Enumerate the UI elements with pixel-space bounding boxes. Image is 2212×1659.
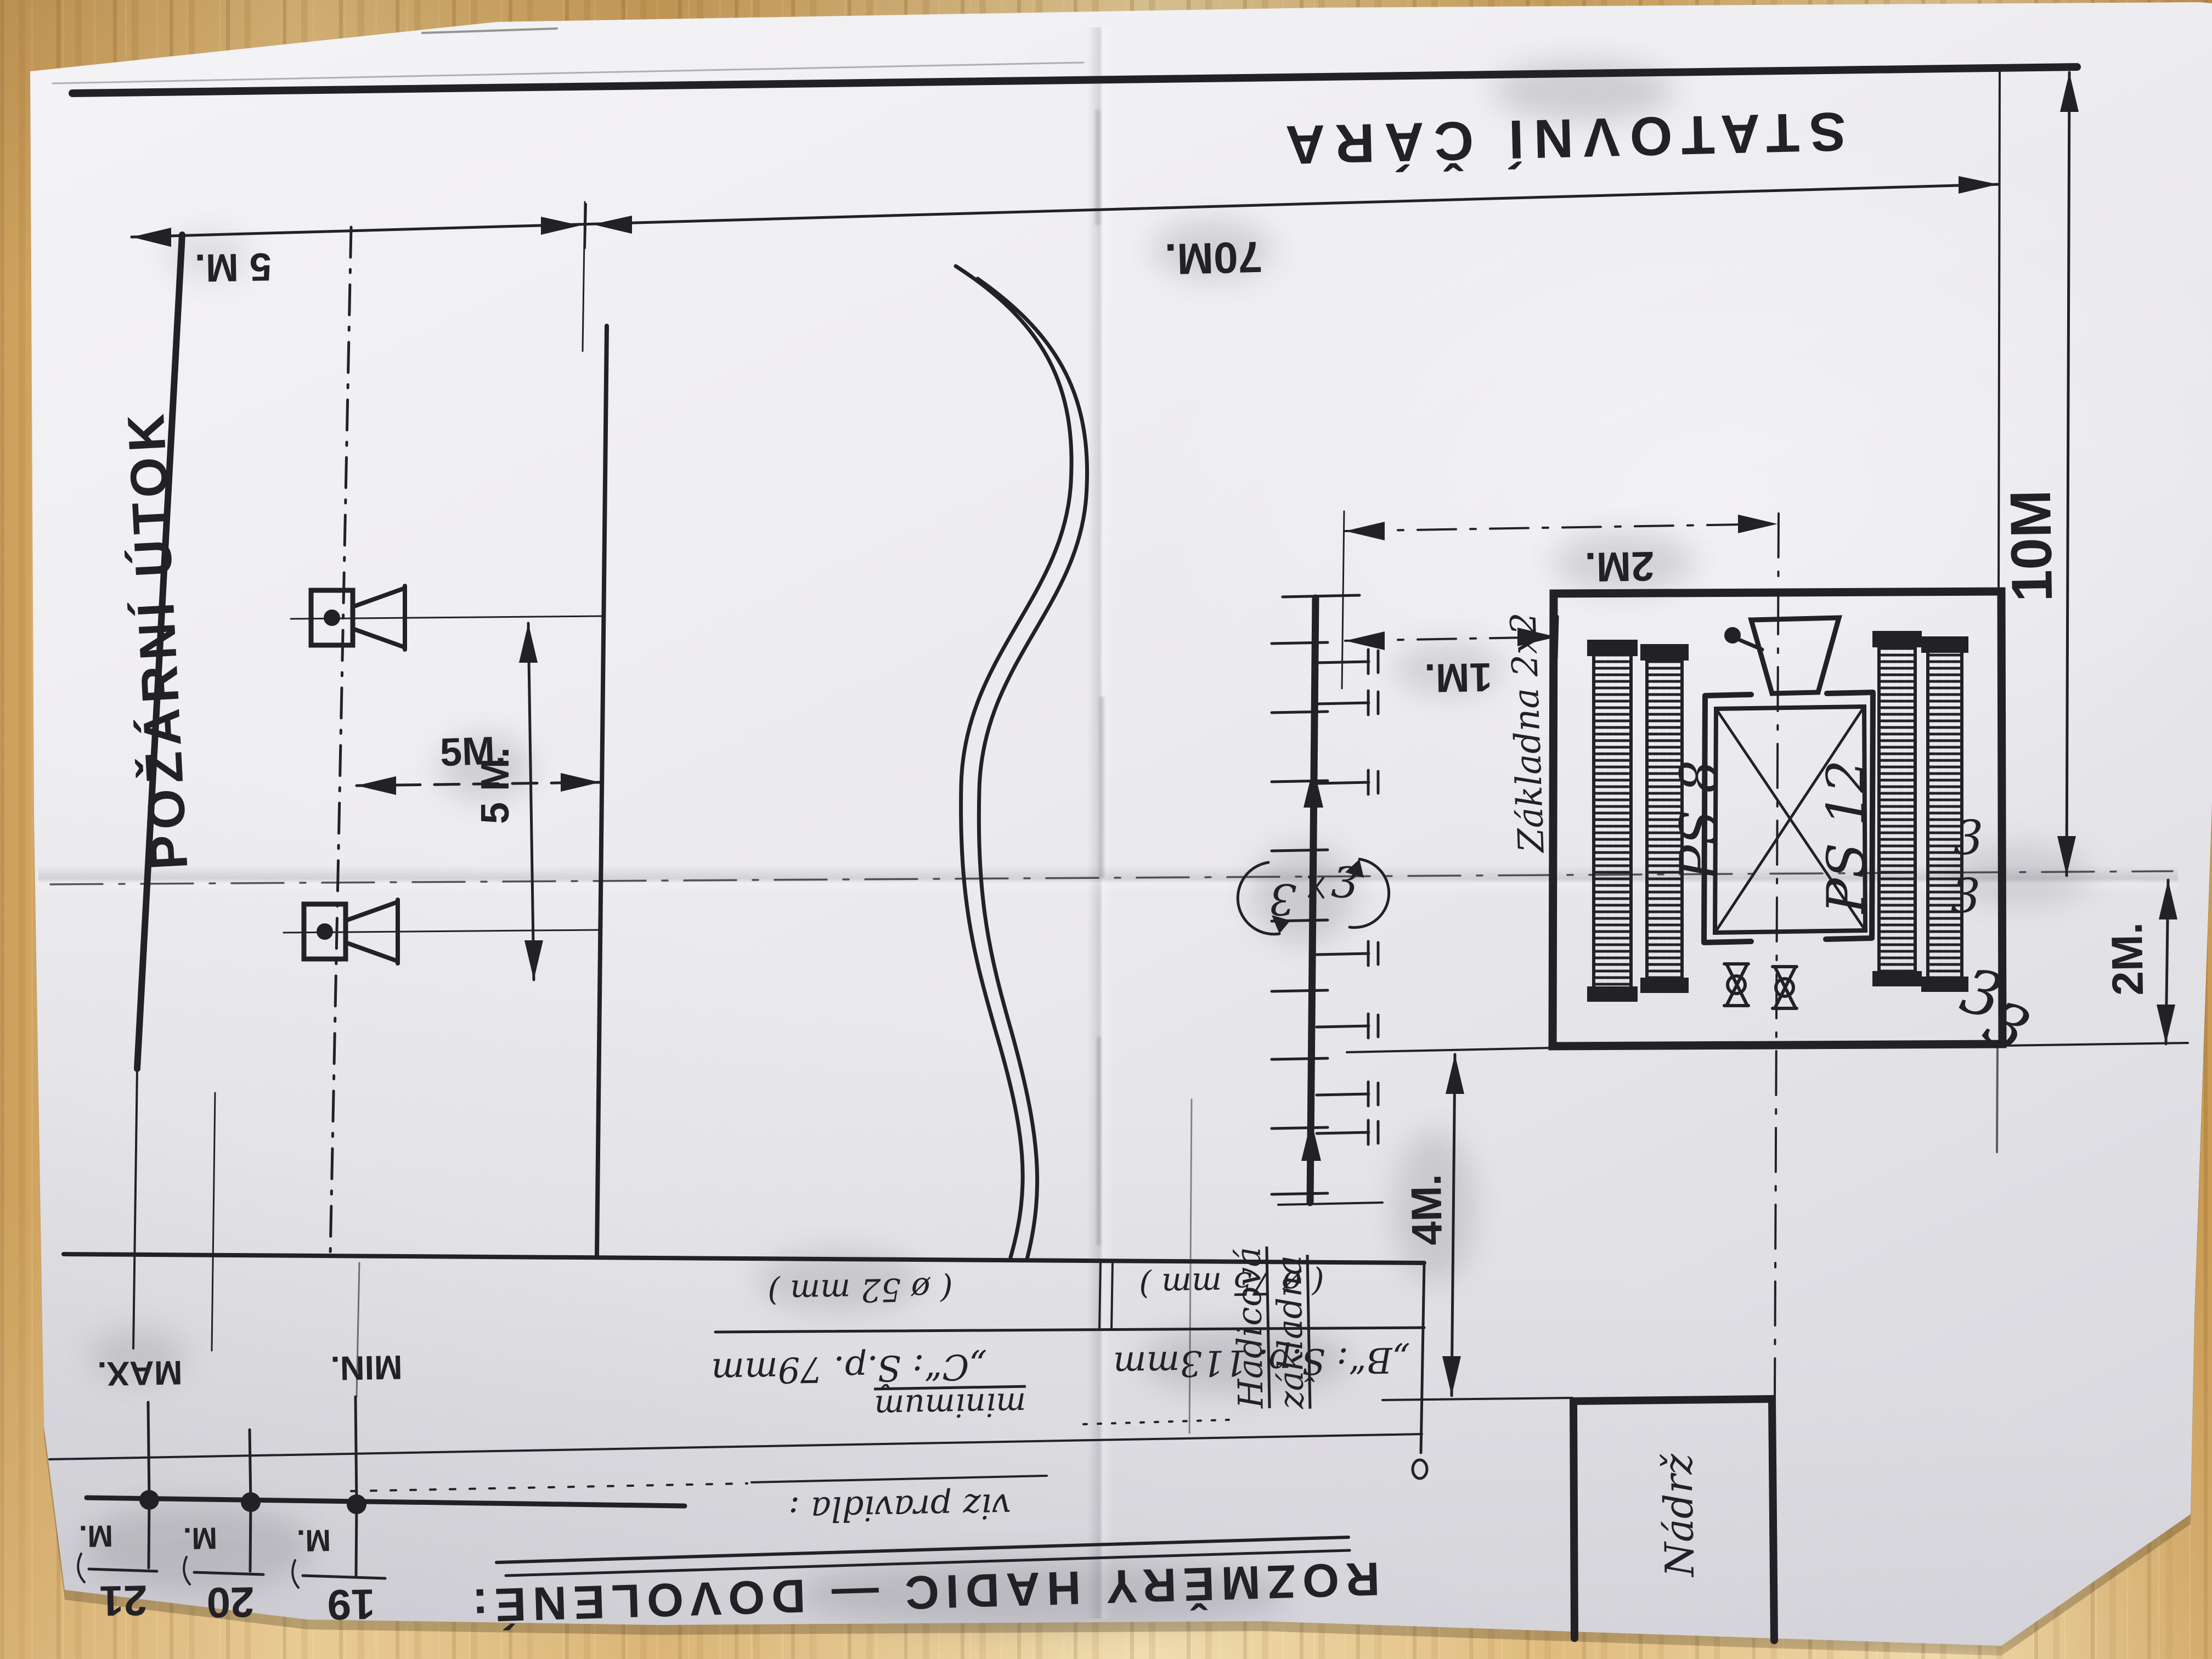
hose-wrench-icon: 3 <box>1951 873 1981 920</box>
hose-diameter-b: ( ø 75 mm ) <box>1139 1266 1325 1301</box>
center-axis-vertical <box>1775 513 1779 1398</box>
five-meter-offset-line <box>597 326 607 1256</box>
base-label: Základna 2x2 <box>1506 612 1549 853</box>
top-dimension-5m-70m <box>132 176 1998 351</box>
min-max-lines <box>78 1263 685 1588</box>
dim-2m-right-label: 2M. <box>2105 922 2150 996</box>
dim-70m-label: 70M. <box>1164 235 1263 281</box>
dim-10m <box>2057 72 2079 876</box>
wavy-fold-line <box>956 266 1087 1259</box>
start-line-label: STATOVNÍ ČÁRA <box>1275 104 1847 172</box>
hose-table-minimum: minimum <box>874 1389 1026 1423</box>
unit-label: M. <box>183 1522 217 1554</box>
max-label: MAX. <box>97 1355 183 1391</box>
target-bottom <box>284 900 601 963</box>
hose-wrench-icon: 3 <box>1954 815 1984 862</box>
hose-spec-c: „C“: Š.p. 79mm <box>711 1348 988 1389</box>
length-value: 20 <box>206 1581 255 1624</box>
tank-label: Nádrž <box>1658 1453 1700 1577</box>
min-label: MIN. <box>330 1350 403 1385</box>
targets-axis <box>330 227 351 1255</box>
hose-count-marker: 3 <box>1330 861 1361 905</box>
dim-10m-label: 10M <box>2002 489 2062 602</box>
dim-2m-base-label: 2M. <box>1584 545 1655 588</box>
start-line-group <box>53 29 2077 93</box>
hose-table-note: viz pravidla : <box>788 1488 1011 1526</box>
diagram-ink-layer <box>0 0 2212 1659</box>
unit-label: M. <box>296 1525 331 1556</box>
coupling-pair-icon <box>1724 964 1797 1008</box>
hose-count-marker: 3 <box>1268 877 1297 921</box>
suction-strainer <box>1724 618 1839 693</box>
length-value: 19 <box>327 1583 375 1627</box>
pump-ps8-label: PS 8 <box>1674 760 1726 881</box>
hose-diameter-c: ( ø 52 mm ) <box>768 1273 953 1308</box>
target-top <box>291 586 603 650</box>
dim-1m-base-label: 1M. <box>1424 657 1493 698</box>
dim-targets-vertical <box>519 623 543 980</box>
dim-4m-label: 4M. <box>1404 1173 1448 1245</box>
dim-5m-targets-v-label: 5 M. <box>476 747 515 824</box>
hose-spec-b: „B“: Š.p. 113mm <box>1113 1341 1411 1381</box>
unit-label: M. <box>78 1520 113 1551</box>
length-value: 21 <box>99 1579 148 1623</box>
pump-ps12-label: PS 12 <box>1821 760 1873 913</box>
dim-5m-top-label: 5 M. <box>194 247 272 287</box>
dim-2m-base <box>1345 515 1778 540</box>
